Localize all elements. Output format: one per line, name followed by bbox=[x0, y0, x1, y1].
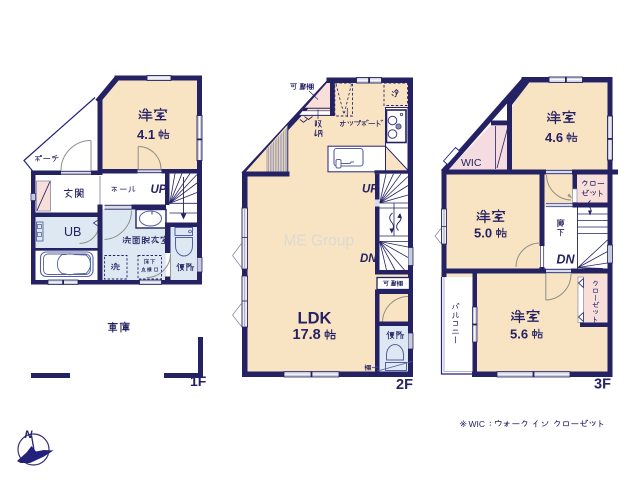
svg-text:LDK: LDK bbox=[298, 310, 332, 328]
svg-text:WIC: WIC bbox=[469, 419, 486, 429]
svg-text:3F: 3F bbox=[594, 377, 611, 393]
svg-text:DN: DN bbox=[557, 253, 576, 267]
svg-text:UP: UP bbox=[362, 184, 378, 196]
svg-text:5.6: 5.6 bbox=[510, 327, 528, 342]
svg-text:WIC: WIC bbox=[461, 157, 482, 169]
svg-text:1F: 1F bbox=[190, 373, 207, 389]
svg-text:DN: DN bbox=[360, 253, 377, 265]
svg-text:ME Group: ME Group bbox=[284, 233, 355, 250]
svg-text:17.8: 17.8 bbox=[293, 327, 321, 343]
svg-text:4.6: 4.6 bbox=[545, 130, 563, 145]
svg-text:4.1: 4.1 bbox=[137, 127, 155, 142]
svg-text:5.0: 5.0 bbox=[474, 226, 492, 241]
svg-text:2F: 2F bbox=[396, 377, 413, 393]
svg-text:UP: UP bbox=[151, 184, 167, 196]
svg-text:UB: UB bbox=[64, 225, 81, 239]
